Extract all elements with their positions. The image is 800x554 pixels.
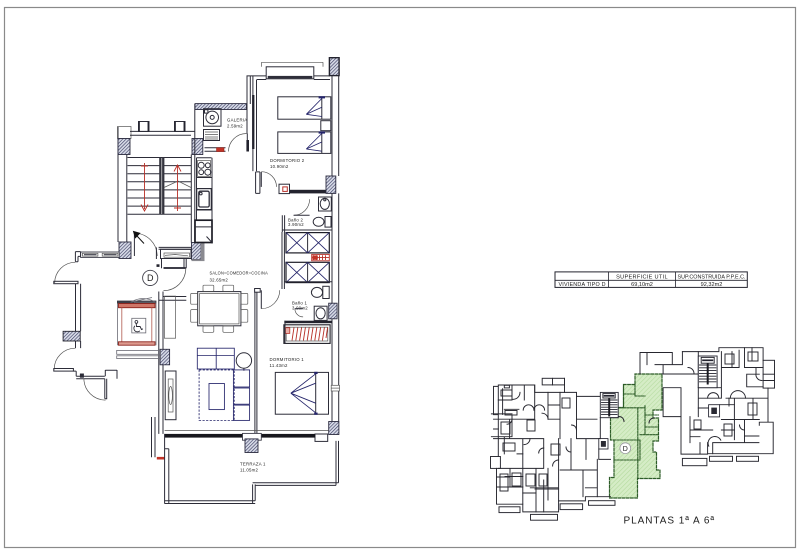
svg-text:10.90m2: 10.90m2 (270, 164, 289, 169)
svg-text:3.90m2: 3.90m2 (292, 306, 308, 311)
svg-text:69,10m2: 69,10m2 (631, 282, 653, 288)
svg-text:TERRAZA 1: TERRAZA 1 (240, 462, 266, 467)
svg-text:GALERIA: GALERIA (227, 118, 247, 123)
svg-text:DORMITORIO 2: DORMITORIO 2 (270, 158, 305, 163)
svg-text:32.65m2: 32.65m2 (210, 277, 229, 282)
svg-text:11.43m2: 11.43m2 (270, 363, 289, 368)
svg-text:3.90m2: 3.90m2 (288, 222, 304, 227)
svg-text:D: D (623, 446, 628, 453)
svg-text:2.59m2: 2.59m2 (227, 124, 243, 129)
svg-text:VIVIENDA TIPO D: VIVIENDA TIPO D (559, 282, 606, 288)
svg-text:SUPERFICIE UTIL: SUPERFICIE UTIL (616, 274, 668, 280)
svg-text:SUP.CONSTRUIDA P.P.E.C.: SUP.CONSTRUIDA P.P.E.C. (677, 274, 745, 280)
svg-text:D: D (147, 273, 154, 283)
svg-text:11.05m2: 11.05m2 (240, 468, 259, 473)
svg-text:PLANTAS 1ª A 6ª: PLANTAS 1ª A 6ª (624, 516, 716, 527)
svg-text:92,32m2: 92,32m2 (701, 282, 723, 288)
svg-text:DORMITORIO 1: DORMITORIO 1 (270, 357, 305, 362)
svg-text:SALON=COMEDOR=COCINA: SALON=COMEDOR=COCINA (210, 270, 269, 275)
